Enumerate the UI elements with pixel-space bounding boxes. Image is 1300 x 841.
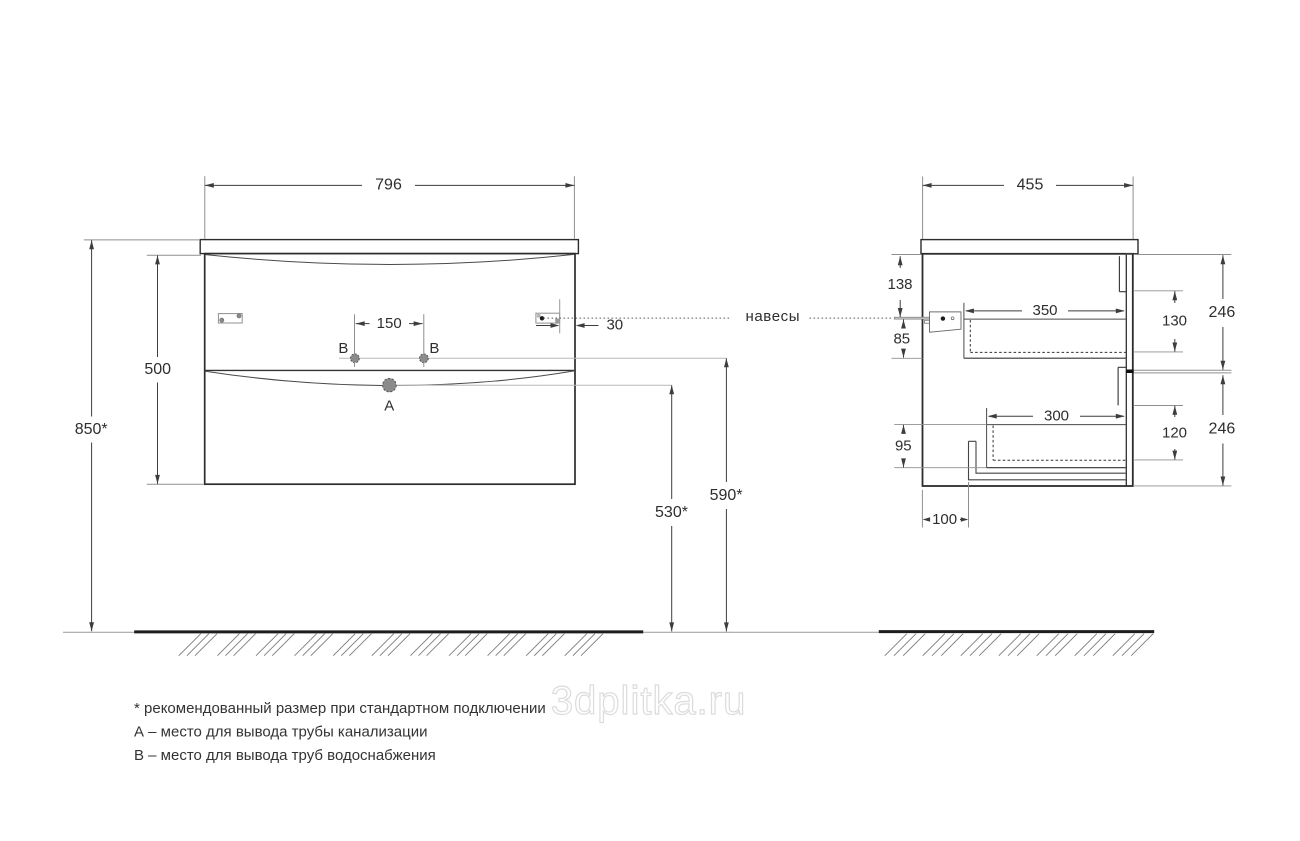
svg-text:3dplitka.ru: 3dplitka.ru	[551, 679, 747, 723]
svg-text:246: 246	[1209, 421, 1236, 438]
svg-text:навесы: навесы	[745, 308, 800, 325]
svg-text:B: B	[429, 340, 439, 357]
svg-text:246: 246	[1209, 304, 1236, 321]
svg-text:850*: 850*	[75, 421, 108, 438]
svg-text:455: 455	[1017, 177, 1044, 194]
svg-text:* рекомендованный размер при с: * рекомендованный размер при стандартном…	[134, 700, 546, 717]
svg-text:85: 85	[893, 330, 910, 347]
svg-text:590*: 590*	[710, 487, 743, 504]
svg-text:350: 350	[1032, 302, 1057, 319]
svg-text:А – место для вывода трубы кан: А – место для вывода трубы канализации	[134, 723, 427, 740]
svg-text:120: 120	[1162, 424, 1187, 441]
svg-text:30: 30	[606, 317, 623, 334]
svg-text:138: 138	[887, 276, 912, 293]
svg-text:В – место для вывода труб водо: В – место для вывода труб водоснабжения	[134, 747, 436, 764]
svg-text:300: 300	[1044, 407, 1069, 424]
svg-text:796: 796	[375, 177, 402, 194]
svg-text:500: 500	[144, 361, 171, 378]
svg-text:100: 100	[932, 511, 957, 528]
svg-text:150: 150	[377, 315, 402, 332]
svg-text:95: 95	[895, 438, 912, 455]
svg-text:530*: 530*	[655, 504, 688, 521]
svg-text:B: B	[338, 340, 348, 357]
svg-text:130: 130	[1162, 312, 1187, 329]
svg-text:A: A	[384, 397, 394, 414]
